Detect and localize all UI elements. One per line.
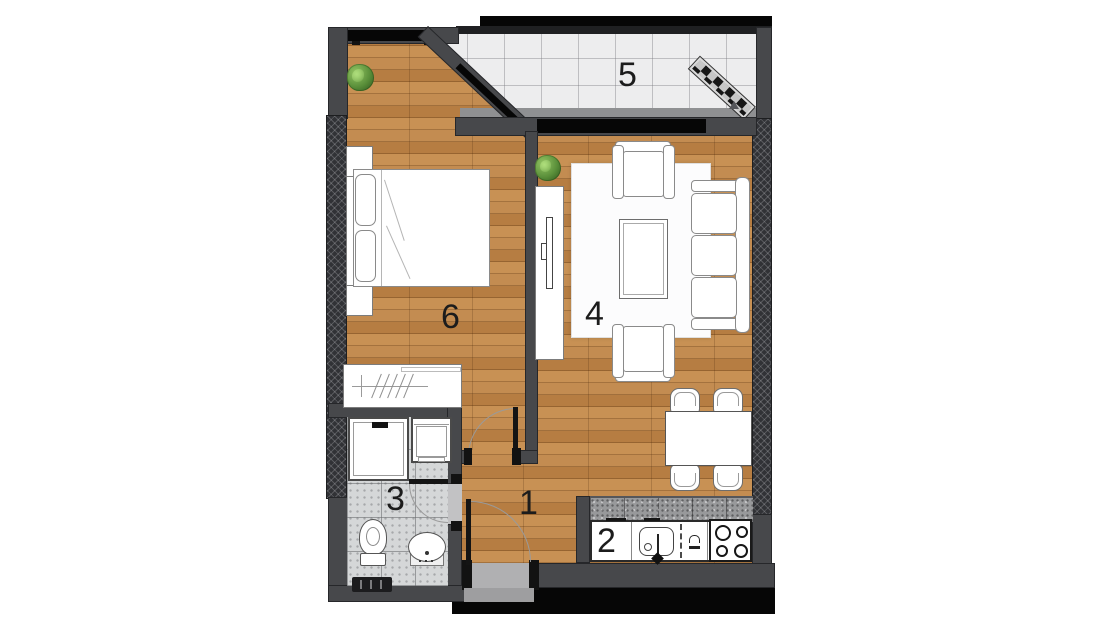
room-label-hallway: 1 bbox=[519, 486, 538, 520]
sink-dot bbox=[431, 560, 433, 562]
toilet-bowl-inner bbox=[366, 527, 380, 546]
sink-bowl bbox=[408, 532, 446, 562]
dining-chair bbox=[713, 464, 743, 491]
armchair-arm bbox=[663, 145, 675, 199]
bathroom-radiator bbox=[352, 577, 392, 592]
stove bbox=[709, 519, 752, 562]
west-wall-upper bbox=[328, 27, 348, 119]
bathroom-door-leaf bbox=[409, 479, 448, 484]
sofa-cushion bbox=[691, 193, 737, 234]
west-exterior-hatch-wall bbox=[326, 115, 347, 499]
burner bbox=[734, 544, 748, 558]
armchair-arm bbox=[663, 324, 675, 378]
bathroom-south-wall bbox=[328, 585, 468, 602]
washer-foot bbox=[418, 457, 445, 462]
pillow bbox=[355, 174, 376, 226]
entrance-door-leaf bbox=[466, 499, 471, 565]
wardrobe-shelf bbox=[401, 367, 461, 372]
floor-plan: 5 6 4 3 1 2 bbox=[0, 0, 1100, 620]
plant-icon bbox=[347, 64, 374, 91]
sofa-armrest bbox=[691, 318, 741, 330]
window-frame-mark bbox=[352, 41, 360, 45]
armchair-seat bbox=[623, 151, 664, 197]
door-jamb bbox=[451, 521, 462, 531]
balcony-east-wall bbox=[756, 27, 772, 120]
room-label-kitchen: 2 bbox=[597, 524, 616, 558]
sink-dot bbox=[419, 560, 421, 562]
east-exterior-hatch-wall bbox=[752, 118, 772, 516]
sofa-backrest bbox=[735, 177, 750, 333]
sofa-cushion bbox=[691, 235, 737, 276]
plant-icon bbox=[535, 155, 561, 181]
wardrobe bbox=[343, 364, 462, 408]
counter-divider bbox=[707, 522, 708, 560]
room-label-bedroom: 6 bbox=[441, 300, 460, 334]
sink-dot bbox=[425, 560, 427, 562]
duvet-edge bbox=[381, 170, 382, 286]
room-label-balcony: 5 bbox=[618, 58, 637, 92]
radiator-fin bbox=[360, 580, 362, 589]
armchair-seat bbox=[623, 326, 664, 372]
door-jamb bbox=[529, 560, 539, 590]
balcony-drain-mark bbox=[729, 101, 739, 109]
dining-chair bbox=[670, 464, 700, 491]
tv-mount bbox=[541, 243, 547, 260]
dining-table bbox=[665, 411, 752, 466]
pillow bbox=[355, 230, 376, 282]
living-balcony-window bbox=[537, 119, 706, 133]
burner bbox=[715, 525, 731, 541]
shower bbox=[348, 417, 409, 481]
coffee-table bbox=[619, 219, 668, 299]
door-jamb bbox=[512, 448, 521, 465]
cabinet-handle bbox=[644, 518, 660, 521]
counter-divider bbox=[631, 522, 632, 560]
washer-top-line bbox=[414, 424, 449, 425]
coffee-table-inner bbox=[623, 223, 664, 295]
nightstand bbox=[346, 285, 373, 316]
radiator-fin bbox=[380, 580, 382, 589]
radiator-fin bbox=[370, 580, 372, 589]
room-label-living-room: 4 bbox=[585, 297, 604, 331]
cabinet-handle bbox=[606, 518, 626, 521]
wardrobe-rail-post bbox=[361, 375, 362, 397]
wardrobe-rail bbox=[352, 386, 428, 387]
door-jamb bbox=[464, 448, 472, 465]
armchair bbox=[612, 141, 675, 201]
dishwasher-icon bbox=[689, 535, 700, 543]
entrance-step bbox=[464, 588, 534, 602]
kitchen-side-wall bbox=[576, 496, 590, 563]
bathroom-door-threshold bbox=[448, 484, 462, 524]
toilet bbox=[358, 519, 389, 568]
counter-dashed-divider bbox=[680, 524, 682, 558]
kitchen-sink-drain bbox=[644, 543, 652, 551]
bathroom-sink bbox=[408, 532, 447, 568]
tv-stand bbox=[535, 186, 564, 360]
door-jamb bbox=[451, 474, 462, 484]
washing-machine bbox=[411, 417, 452, 463]
shower-tray bbox=[353, 422, 404, 476]
armchair bbox=[612, 322, 675, 382]
burner bbox=[736, 526, 748, 538]
bed bbox=[346, 146, 490, 316]
shower-drain bbox=[372, 422, 388, 428]
tv bbox=[546, 217, 553, 289]
sink-drain bbox=[425, 551, 429, 555]
washer-drum bbox=[416, 426, 447, 457]
sofa-cushion bbox=[691, 277, 737, 318]
sofa bbox=[691, 177, 752, 333]
room-label-bathroom: 3 bbox=[386, 482, 405, 516]
toilet-tank bbox=[360, 553, 386, 566]
burner bbox=[716, 545, 728, 557]
balcony-railing bbox=[456, 26, 772, 34]
sofa-armrest bbox=[691, 180, 741, 192]
dishwasher-icon-base bbox=[689, 546, 700, 549]
entrance-threshold bbox=[471, 563, 529, 588]
